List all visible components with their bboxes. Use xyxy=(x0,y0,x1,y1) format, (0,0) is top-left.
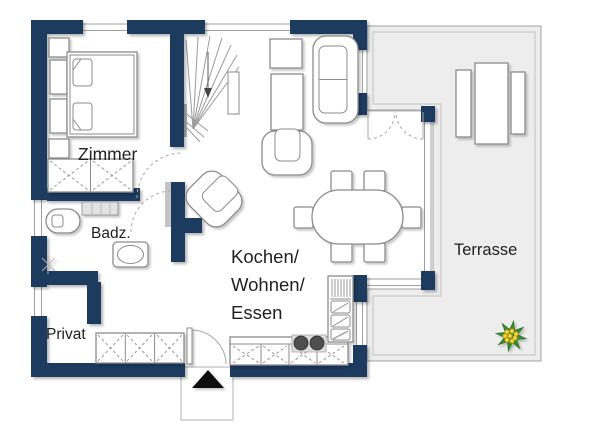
terrace-lounger-left xyxy=(456,70,471,137)
room-label-terrasse: Terrasse xyxy=(454,241,517,259)
dining-set xyxy=(294,171,421,262)
hall-wardrobe xyxy=(96,333,184,363)
room-label-privat: Privat xyxy=(46,326,86,343)
room-label-zimmer: Zimmer xyxy=(78,144,137,164)
floor-plan-drawing: Zimmer Badz. Privat Kochen/ Wohnen/ Esse… xyxy=(0,0,600,425)
pillow xyxy=(73,59,92,86)
dining-chair xyxy=(402,207,421,228)
terrace-lounger-right xyxy=(511,72,525,134)
pillow xyxy=(73,103,92,130)
dining-chair xyxy=(364,243,385,262)
terrace-door-arc-left xyxy=(368,112,395,139)
dining-table xyxy=(312,190,403,244)
sideboard xyxy=(271,74,303,130)
terrace-table xyxy=(475,63,508,144)
double-bed xyxy=(67,52,137,137)
room-label-wohnbereich-line1: Kochen/ xyxy=(231,246,300,267)
stairs-direction-arrow xyxy=(204,88,212,98)
armchair xyxy=(262,129,312,175)
stair-stringer xyxy=(228,72,239,114)
side-table xyxy=(270,39,302,68)
dining-chair xyxy=(331,171,352,191)
door-frame xyxy=(165,182,171,227)
kitchen-tall-unit xyxy=(328,276,353,342)
dining-chair xyxy=(364,171,385,191)
dining-chair xyxy=(331,243,352,262)
room-label-wohnbereich-line2: Wohnen/ xyxy=(231,274,306,295)
terrace-door-arc-right xyxy=(396,112,423,139)
bed-headboard xyxy=(50,99,67,133)
entrance-door-arc xyxy=(191,330,226,364)
bed-headboard xyxy=(50,60,67,94)
stairs-icon xyxy=(181,36,239,142)
terrace-furniture xyxy=(456,63,525,144)
sofa xyxy=(313,36,358,123)
room-label-wohnbereich-line3: Essen xyxy=(231,302,282,323)
nightstand xyxy=(49,38,69,57)
cooktop xyxy=(292,335,326,352)
floor-plan: Zimmer Badz. Privat Kochen/ Wohnen/ Esse… xyxy=(0,0,600,425)
radiator xyxy=(82,202,118,215)
entrance-door-leaf xyxy=(187,328,192,364)
nightstand xyxy=(49,139,69,158)
dining-chair xyxy=(294,207,313,228)
bathroom-sink xyxy=(113,242,148,267)
toilet xyxy=(46,209,80,233)
room-label-badezimmer: Badz. xyxy=(91,225,131,242)
